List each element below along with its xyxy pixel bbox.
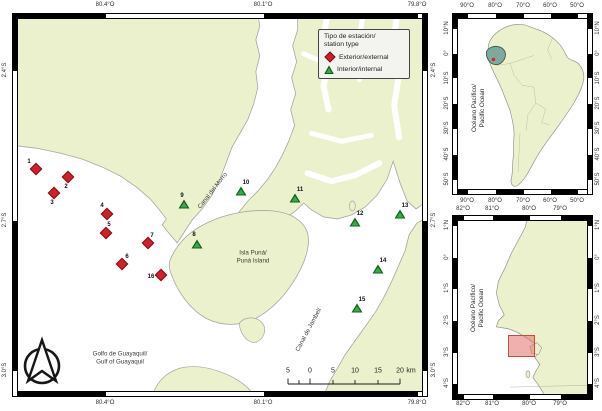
frame-zebra-bottom	[453, 189, 592, 194]
axis-label-sa-bottom: 50°O	[570, 198, 584, 204]
frame-zebra-top	[453, 216, 592, 221]
axis-label-ec-bottom: 82°O	[456, 401, 470, 407]
axis-label-sa-right: 20°S	[595, 96, 601, 109]
axis-label-sa-left: 50°S	[444, 172, 450, 185]
axis-label-sa-left: 10°N	[444, 21, 450, 34]
frame-zebra-left	[453, 216, 458, 399]
axis-label-ec-left: 1°N	[444, 220, 450, 230]
axis-label-main-top: 79.8°O	[408, 2, 427, 8]
study-area-dot	[492, 58, 496, 62]
axis-label-ec-right: 0°	[595, 254, 601, 260]
axis-label-sa-right: 10°S	[595, 71, 601, 84]
axis-label-main-right: 2.7°S	[431, 213, 437, 228]
axis-label-main-bottom: 80.4°O	[96, 400, 115, 406]
axis-label-main-top: 80.4°O	[96, 2, 115, 8]
frame-zebra-right	[422, 14, 427, 396]
study-area-rectangle	[508, 335, 535, 357]
axis-label-sa-bottom: 60°O	[543, 198, 557, 204]
axis-label-ec-left: 2°S	[444, 315, 450, 325]
axis-label-ec-right: 1°N	[595, 220, 601, 230]
external-station-marker-icon	[324, 52, 335, 63]
axis-label-sa-left: 10°S	[444, 71, 450, 84]
axis-label-main-left: 2.7°S	[2, 213, 8, 228]
legend-item-label: Exterior/external	[339, 54, 389, 61]
axis-label-sa-top: 60°O	[543, 3, 557, 9]
axis-label-sa-right: 30°S	[595, 121, 601, 134]
axis-label-sa-left: 30°S	[444, 121, 450, 134]
axis-label-sa-right: 50°S	[595, 172, 601, 185]
north-arrow-icon	[16, 336, 68, 388]
frame-zebra-bottom	[453, 394, 592, 399]
ecuador-highlight	[486, 46, 505, 64]
scale-bar	[278, 375, 412, 389]
axis-label-sa-bottom: 70°O	[516, 198, 530, 204]
axis-label-main-bottom: 79.8°O	[408, 400, 427, 406]
axis-label-sa-left: 40°S	[444, 147, 450, 160]
ecuador-coast-land	[453, 216, 592, 399]
axis-label-ec-bottom: 80°O	[522, 401, 536, 407]
axis-label-sa-top: 80°O	[488, 3, 502, 9]
frame-zebra-top	[453, 14, 592, 19]
axis-label-sa-top: 50°O	[570, 3, 584, 9]
axis-label-sa-top: 70°O	[516, 3, 530, 9]
axis-label-ec-left: 1°S	[444, 283, 450, 293]
frame-zebra-left	[453, 14, 458, 194]
axis-label-ec-right: 2°S	[595, 315, 601, 325]
axis-label-main-right: 3.0°S	[431, 363, 437, 378]
axis-label-ec-top: 80°O	[522, 206, 536, 212]
axis-label-ec-bottom: 79°O	[553, 401, 567, 407]
axis-label-main-left: 2.4°S	[2, 63, 8, 78]
legend-item-label: Interior/internal	[337, 66, 382, 73]
axis-label-ec-bottom: 81°O	[485, 401, 499, 407]
axis-label-main-bottom: 80.1°O	[254, 400, 273, 406]
inset-map-south-america	[452, 13, 593, 195]
axis-label-ec-left: 4°S	[444, 378, 450, 388]
axis-label-sa-right: 10°N	[595, 21, 601, 34]
jambeli-islet	[526, 371, 530, 378]
axis-label-ec-right: 1°S	[595, 283, 601, 293]
legend: Tipo de estación/ station type Exterior/…	[318, 29, 410, 79]
axis-label-ec-left: 3°S	[444, 347, 450, 357]
axis-label-sa-bottom: 90°O	[460, 198, 474, 204]
axis-label-main-right: 2.4°S	[431, 63, 437, 78]
internal-station-marker-icon	[324, 65, 334, 74]
frame-zebra-right	[587, 216, 592, 399]
axis-label-sa-right: 40°S	[595, 147, 601, 160]
frame-zebra-top	[13, 14, 427, 19]
axis-label-sa-left: 0°	[444, 50, 450, 56]
map-figure: Tipo de estación/ station type Exterior/…	[0, 0, 602, 411]
frame-zebra-bottom	[13, 391, 427, 396]
axis-label-main-top: 80.1°O	[254, 2, 273, 8]
axis-label-ec-top: 82°O	[456, 206, 470, 212]
legend-title-line2: station type	[324, 41, 405, 49]
south-america-land	[453, 14, 592, 194]
axis-label-ec-left: 0°	[444, 254, 450, 260]
axis-label-sa-left: 20°S	[444, 96, 450, 109]
axis-label-ec-right: 3°S	[595, 347, 601, 357]
inset-map-ecuador-coast	[452, 215, 593, 400]
axis-label-sa-right: 0°	[595, 50, 601, 56]
axis-label-main-left: 3.0°S	[2, 363, 8, 378]
axis-label-ec-right: 4°S	[595, 378, 601, 388]
legend-title-line1: Tipo de estación/	[324, 33, 405, 41]
axis-label-ec-top: 81°O	[485, 206, 499, 212]
frame-zebra-right	[587, 14, 592, 194]
axis-label-sa-bottom: 80°O	[488, 198, 502, 204]
axis-label-ec-top: 79°O	[553, 206, 567, 212]
islet-small	[349, 201, 355, 211]
legend-item-external: Exterior/external	[324, 52, 405, 62]
legend-item-internal: Interior/internal	[324, 65, 405, 74]
axis-label-sa-top: 90°O	[460, 3, 474, 9]
